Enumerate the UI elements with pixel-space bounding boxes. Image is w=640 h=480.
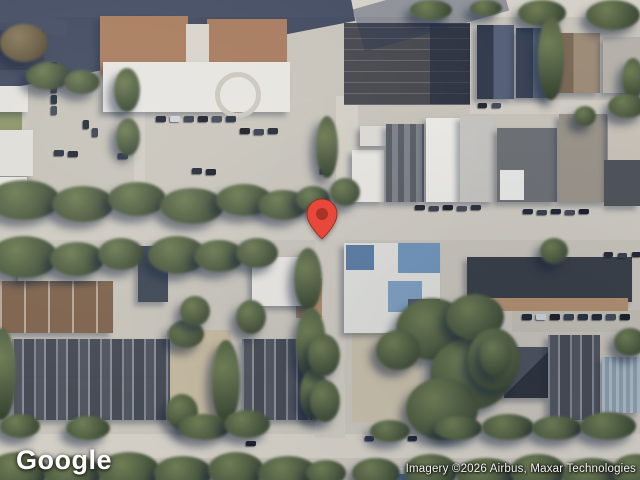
tree-cluster bbox=[316, 116, 338, 178]
tree-cluster bbox=[540, 238, 568, 264]
building-apartment-brown bbox=[0, 281, 113, 333]
building-gable-a bbox=[477, 25, 514, 99]
tree-cluster bbox=[154, 456, 212, 480]
building-commercial-white-b bbox=[426, 118, 460, 202]
parked-car bbox=[579, 209, 589, 214]
parked-car bbox=[51, 106, 57, 115]
tree-cluster bbox=[434, 416, 482, 440]
parked-car bbox=[198, 116, 208, 122]
tree-cluster bbox=[482, 414, 534, 440]
tree-cluster bbox=[308, 334, 340, 376]
tree-cluster bbox=[538, 16, 564, 100]
building-brick-hall-roof bbox=[467, 257, 632, 302]
pin-inner-circle bbox=[316, 208, 328, 220]
parked-car bbox=[604, 252, 613, 257]
parked-car bbox=[51, 95, 57, 104]
tree-cluster bbox=[178, 414, 230, 440]
tree-cluster bbox=[614, 328, 640, 356]
building-arc-detail bbox=[215, 72, 261, 118]
townhouse-row-a bbox=[12, 339, 170, 378]
parked-car bbox=[212, 116, 222, 122]
building-dark-roof-east bbox=[604, 160, 640, 206]
parked-car bbox=[632, 252, 640, 257]
tree-cluster bbox=[586, 0, 640, 30]
parked-car bbox=[592, 314, 602, 320]
tree-cluster bbox=[66, 416, 110, 440]
parked-car bbox=[537, 210, 547, 215]
building-small-west-b bbox=[0, 130, 33, 176]
building-white-inset bbox=[500, 170, 524, 200]
building-commercial-small bbox=[360, 126, 386, 146]
parked-car bbox=[550, 314, 560, 320]
tree-cluster bbox=[608, 94, 640, 118]
tree-cluster bbox=[0, 414, 40, 438]
tree-cluster bbox=[0, 24, 48, 62]
tree-cluster bbox=[50, 242, 104, 276]
tree-cluster bbox=[410, 0, 452, 20]
parked-car bbox=[240, 128, 250, 134]
tree-cluster bbox=[224, 410, 270, 438]
tree-cluster bbox=[114, 68, 140, 112]
townhouse-row-d bbox=[548, 335, 600, 420]
google-logo[interactable]: Google bbox=[16, 445, 112, 476]
shadow-parking-edge bbox=[430, 24, 470, 104]
tree-cluster bbox=[208, 452, 264, 480]
tree-cluster bbox=[116, 118, 140, 156]
location-marker[interactable] bbox=[306, 198, 338, 240]
parked-car bbox=[429, 206, 439, 211]
building-roof-blue-b bbox=[398, 243, 440, 273]
tree-cluster bbox=[180, 296, 210, 326]
building-metal-roof bbox=[602, 357, 640, 413]
tree-cluster bbox=[532, 416, 582, 440]
parked-car bbox=[471, 205, 481, 210]
tree-cluster bbox=[306, 460, 346, 480]
building-roof-blue-a bbox=[346, 245, 374, 270]
tree-cluster bbox=[376, 330, 420, 370]
map-canvas[interactable]: Google Imagery ©2026 Airbus, Maxar Techn… bbox=[0, 0, 640, 480]
tree-cluster bbox=[518, 0, 566, 26]
parked-car bbox=[443, 205, 453, 210]
building-commercial-dark-strips bbox=[386, 124, 424, 202]
building-small-west-a bbox=[0, 86, 28, 112]
tree-cluster bbox=[236, 300, 266, 334]
parked-car bbox=[457, 206, 467, 211]
tree-cluster bbox=[64, 70, 100, 94]
building-commercial-d bbox=[559, 114, 607, 202]
parked-car bbox=[415, 205, 425, 210]
parked-car bbox=[170, 116, 180, 122]
imagery-attribution: Imagery ©2026 Airbus, Maxar Technologies bbox=[406, 463, 636, 475]
tree-cluster bbox=[370, 420, 410, 442]
parked-car bbox=[522, 314, 532, 320]
parked-car bbox=[254, 129, 264, 135]
parked-car bbox=[192, 168, 202, 174]
parked-car bbox=[92, 128, 98, 137]
parked-car bbox=[492, 103, 501, 108]
parked-car bbox=[578, 314, 588, 320]
parked-car bbox=[246, 441, 256, 446]
tree-cluster bbox=[98, 238, 144, 270]
parked-car bbox=[618, 253, 627, 258]
parked-car bbox=[226, 116, 236, 122]
tree-cluster bbox=[160, 188, 224, 224]
tree-cluster bbox=[310, 380, 340, 422]
parked-car bbox=[478, 103, 487, 108]
tree-cluster bbox=[26, 62, 70, 90]
parked-car bbox=[606, 314, 616, 320]
parked-car bbox=[565, 210, 575, 215]
parked-car bbox=[184, 116, 194, 122]
tree-cluster bbox=[352, 458, 400, 480]
tree-cluster bbox=[294, 248, 322, 310]
tree-cluster bbox=[108, 182, 166, 216]
building-commercial-gray bbox=[460, 116, 494, 202]
parked-car bbox=[523, 209, 533, 214]
pin-icon bbox=[306, 198, 338, 240]
parked-car bbox=[620, 314, 630, 320]
tree-cluster bbox=[236, 238, 278, 268]
parked-car bbox=[54, 150, 64, 156]
parked-car bbox=[268, 128, 278, 134]
tree-cluster bbox=[580, 412, 636, 440]
parked-car bbox=[536, 314, 546, 320]
tree-cluster bbox=[470, 0, 502, 16]
parked-car bbox=[551, 209, 561, 214]
parked-car bbox=[564, 314, 574, 320]
tree-cluster bbox=[574, 106, 596, 126]
parked-car bbox=[83, 120, 89, 129]
parked-car bbox=[68, 151, 78, 157]
parked-car bbox=[156, 116, 166, 122]
townhouse-row-b bbox=[12, 378, 170, 420]
parked-car bbox=[206, 169, 216, 175]
parked-car bbox=[408, 436, 417, 441]
tree-cluster bbox=[480, 334, 512, 376]
tree-cluster bbox=[52, 186, 114, 222]
